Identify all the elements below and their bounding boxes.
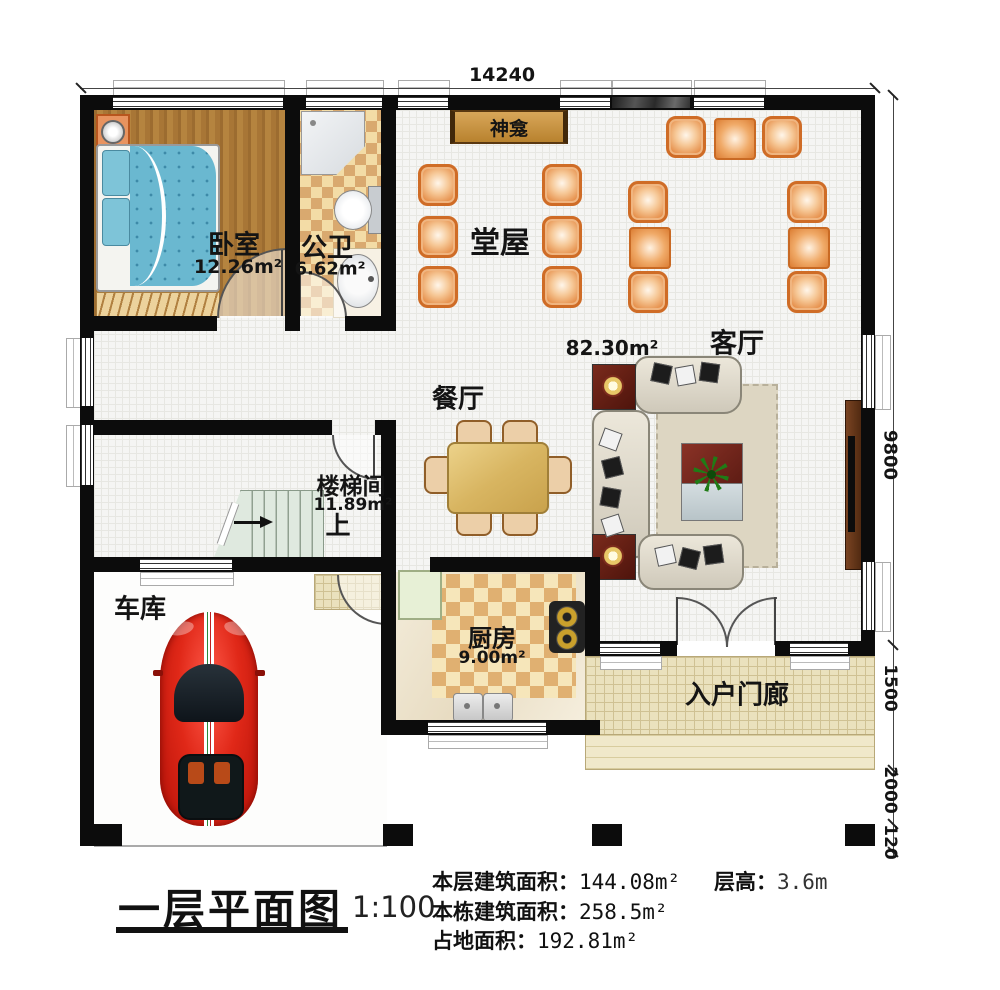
building-area-value: 258.5m² [579,900,668,924]
sofa-pillow [650,362,673,385]
floor-area-value: 144.08m² [579,870,680,894]
plant-center [707,470,716,479]
side-table-lamp-icon [602,545,624,567]
height-value: 3.6m [777,870,828,894]
living-label: 客厅 [710,322,764,361]
toilet-bowl [334,190,372,230]
car-mirror-icon [153,670,163,676]
window-right-1 [862,335,874,408]
scale-label: 1:100 [352,890,436,924]
hall-chair [628,271,668,313]
wall-stair-north [80,420,332,435]
sill-living-1 [600,656,662,670]
kitchen-sink-drain [464,703,470,709]
sill-right-2 [875,562,891,632]
pillar-4 [845,824,875,846]
sofa-pillow [599,486,621,508]
bathroom-area: 6.62m² [294,259,365,280]
hall-chair [542,266,582,308]
fridge [398,570,442,620]
hall-chair [542,164,582,206]
car-windshield [174,664,244,722]
kitchen-sink-drain [494,703,500,709]
garage-label: 车库 [114,589,166,626]
dim-right-9800: 9800 [880,430,901,480]
window-right-2 [862,562,874,630]
shrine-label: 神龛 [490,114,528,141]
dim-right-2000: 2000 [880,766,900,813]
hall-label: 堂屋 [470,218,530,262]
hall-chair [418,216,458,258]
title-underline [116,927,348,933]
window-kitchen-south [428,722,546,733]
floor-plan-page: { "title": { "name": "一层平面图", "scale": "… [0,0,1000,990]
sofa-pillow [674,364,696,386]
entry-porch-step [585,734,875,770]
lamp-icon [101,120,125,144]
pillar-2 [383,824,413,846]
dining-table [447,442,549,514]
bedroom-area: 12.26m² [194,256,282,278]
sill-garage [140,572,234,586]
bed-pillow-1 [102,150,130,196]
window-garage-north [140,559,232,570]
hall-chair [628,181,668,223]
window-living-south-2 [790,643,848,654]
wall-bed-bath [285,110,300,316]
stairs-up-label: 上 [325,506,350,542]
window-bedroom-top [113,97,283,108]
stove-burner-icon [556,628,578,650]
dim-right-120: 120 [880,824,900,860]
hall-chair [787,181,827,223]
stats-row-2: 本栋建筑面积：258.5m² [432,896,668,926]
hall-chair [666,116,706,158]
dining-label: 餐厅 [432,379,484,416]
car-mirror-icon [255,670,265,676]
sofa-pillow [699,362,720,383]
window-hall-top-2 [560,97,610,108]
wall-garage-north [80,557,396,572]
wall-bath-hall [381,110,396,316]
garage-entrance-line [94,845,387,847]
wardrobe [96,292,220,318]
sill-right-1 [875,335,891,410]
porch-label: 入户门廊 [685,675,789,712]
wall-bath-south [345,316,396,331]
hall-chair [787,271,827,313]
hall-side-table [788,227,830,269]
hall-side-table [714,118,756,160]
wall-bedroom-south-a [80,316,217,331]
wall-bedroom-south-b [285,316,300,331]
hall-chair [418,266,458,308]
sill-living-2 [790,656,850,670]
shower-drain [310,120,316,126]
stats-row-1: 本层建筑面积：144.08m² [432,866,680,896]
kitchen-area: 9.00m² [458,648,525,668]
sofa-pillow [703,544,724,565]
pillar-3 [592,824,622,846]
car-engine-detail [188,762,204,784]
sofa-pillow [654,544,677,567]
stove-burner-icon [556,606,578,628]
stairs-arrow-line [234,521,262,524]
stairs-treads [240,490,324,559]
wall-kitchen-north [430,557,585,572]
dim-width-top: 14240 [469,64,535,86]
stats-row-3: 占地面积：192.81m² [432,925,638,955]
window-left-1 [81,338,93,406]
footprint-value: 192.81m² [537,929,638,953]
wall-stair-north-stub [375,420,396,435]
main-double-door-right-leaf [774,597,776,645]
sill-kitchen [428,735,548,749]
shrine: 神龛 [450,110,568,144]
window-hall-top-3 [694,97,764,108]
height-stat: 层高：3.6m [714,866,828,896]
dim-right-1500: 1500 [880,664,900,711]
hall-chair [762,116,802,158]
main-double-door-left-leaf [676,597,678,645]
floor-area-label: 本层建筑面积： [432,870,579,894]
hall-side-table [629,227,671,269]
stairs-arrow-head-icon [260,516,273,528]
dim-line-top [80,88,875,89]
window-hall-top-glass [612,97,690,108]
tv-screen [848,436,855,532]
living-area: 82.30m² [566,336,659,360]
building-area-label: 本栋建筑面积： [432,900,579,924]
window-living-south-1 [600,643,660,654]
car [160,612,258,826]
hall-chair [418,164,458,206]
wall-kitchen-west [381,572,396,735]
bed-pillow-2 [102,198,130,246]
height-label: 层高： [714,870,777,894]
window-bath-top [306,97,382,108]
footprint-label: 占地面积： [432,929,537,953]
side-table-lamp-icon [602,375,624,397]
hall-chair [542,216,582,258]
window-left-2 [81,425,93,485]
car-engine-detail [214,762,230,784]
sink-tap [368,276,374,282]
window-hall-top-1 [398,97,448,108]
pillar-1 [80,824,122,846]
